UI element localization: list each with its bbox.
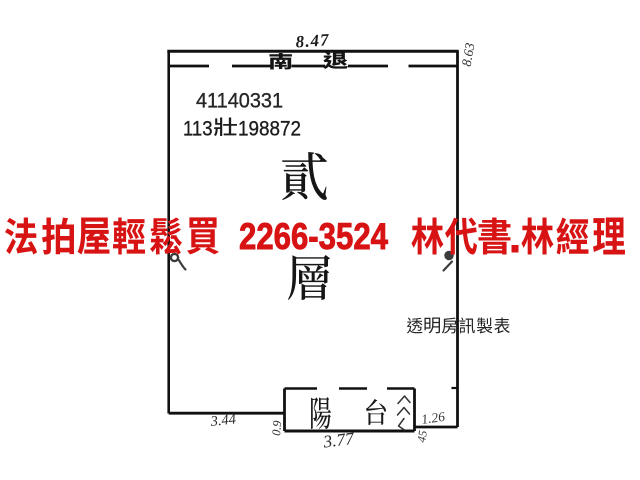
svg-text:3.77: 3.77: [321, 428, 356, 452]
svg-text:41140331: 41140331: [196, 89, 283, 113]
svg-text:8.47: 8.47: [295, 30, 331, 51]
svg-text:3.44: 3.44: [209, 411, 237, 430]
svg-text:113: 113: [183, 117, 213, 141]
svg-text:45: 45: [414, 429, 430, 443]
svg-text:0.9: 0.9: [269, 420, 284, 436]
svg-text:198872: 198872: [238, 117, 301, 141]
svg-text:2266-3524: 2266-3524: [239, 215, 388, 257]
